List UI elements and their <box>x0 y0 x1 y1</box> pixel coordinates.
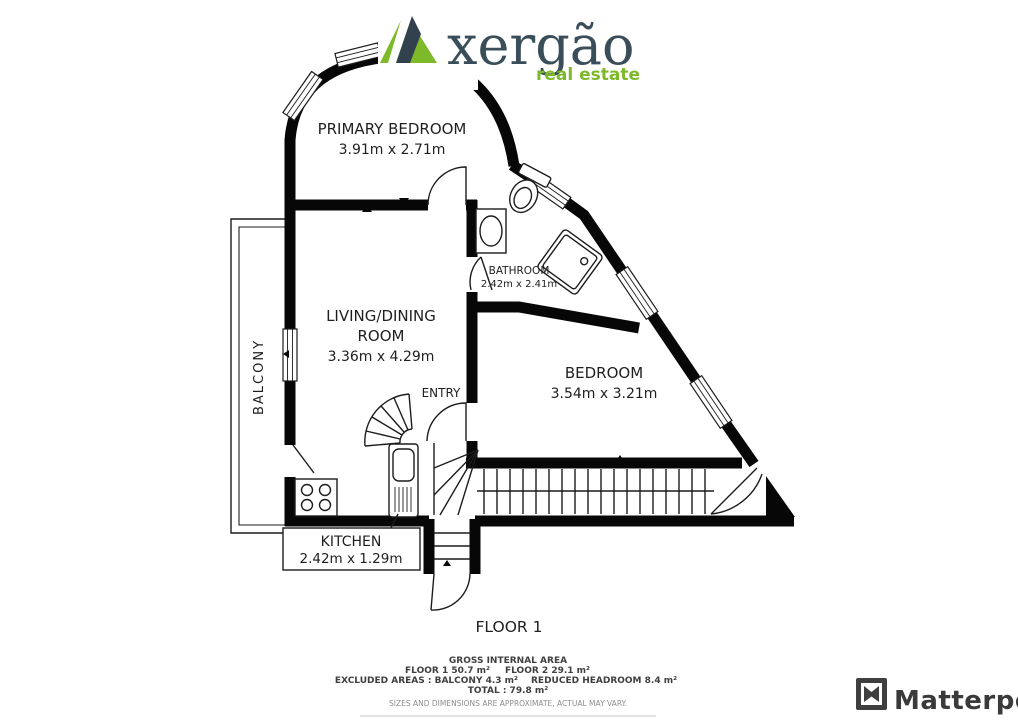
floor-plan: xergão real estate PRIMARY BEDROOM 3.91m… <box>0 0 1018 720</box>
door-arc <box>428 167 466 205</box>
room-dims-primary-bedroom: 3.91m x 2.71m <box>339 142 446 158</box>
room-dims-bathroom: 2.42m x 2.41m <box>481 279 557 290</box>
room-dims-living-dining: 3.36m x 4.29m <box>328 349 435 365</box>
excluded-areas: EXCLUDED AREAS : BALCONY 4.3 m² <box>335 676 518 686</box>
floor2-area: FLOOR 2 29.1 m² <box>505 666 590 676</box>
windows <box>283 43 732 428</box>
floorplan-page: xergão real estate PRIMARY BEDROOM 3.91m… <box>0 0 1018 720</box>
stove-icon <box>295 479 337 516</box>
disclaimer: SIZES AND DIMENSIONS ARE APPROXIMATE, AC… <box>389 699 627 708</box>
reduced-headroom: REDUCED HEADROOM 8.4 m² <box>531 676 677 686</box>
matterport-watermark: Matterport <box>856 678 1018 716</box>
room-label-kitchen: KITCHEN <box>321 534 382 550</box>
floor1-area: FLOOR 1 50.7 m² <box>405 666 490 676</box>
window-icon <box>616 267 658 320</box>
room-dims-bedroom: 3.54m x 3.21m <box>551 386 658 402</box>
room-label-bathroom: BATHROOM <box>489 265 550 277</box>
sink-icon <box>476 209 506 253</box>
stair-treads <box>477 469 714 514</box>
kitchen-sink-icon <box>389 444 418 517</box>
room-label-entry: ENTRY <box>422 386 461 400</box>
room-label-living-dining: LIVING/DINING <box>326 307 436 325</box>
brand-tagline: real estate <box>536 65 640 85</box>
spiral-stair <box>365 394 412 446</box>
room-label-bedroom: BEDROOM <box>565 364 643 382</box>
gross-area-title: GROSS INTERNAL AREA <box>449 656 567 666</box>
room-label-primary-bedroom: PRIMARY BEDROOM <box>318 120 467 138</box>
window-icon <box>690 376 732 429</box>
door-arc <box>427 403 466 441</box>
total-area: TOTAL : 79.8 m² <box>468 686 549 696</box>
entrance-steps <box>434 533 470 559</box>
room-label-balcony: BALCONY <box>252 339 267 415</box>
room-dims-kitchen: 2.42m x 1.29m <box>300 551 403 567</box>
window-icon <box>283 72 323 121</box>
matterport-icon <box>856 678 887 710</box>
door-arc <box>293 445 314 473</box>
floor-label: FLOOR 1 <box>476 618 543 636</box>
matterport-label: Matterport <box>894 686 1018 716</box>
area-summary: GROSS INTERNAL AREA FLOOR 1 50.7 m² FLOO… <box>335 656 677 716</box>
door-arc <box>711 468 762 514</box>
room-label-living-dining-2: ROOM <box>358 327 405 345</box>
door-arc <box>431 574 470 610</box>
